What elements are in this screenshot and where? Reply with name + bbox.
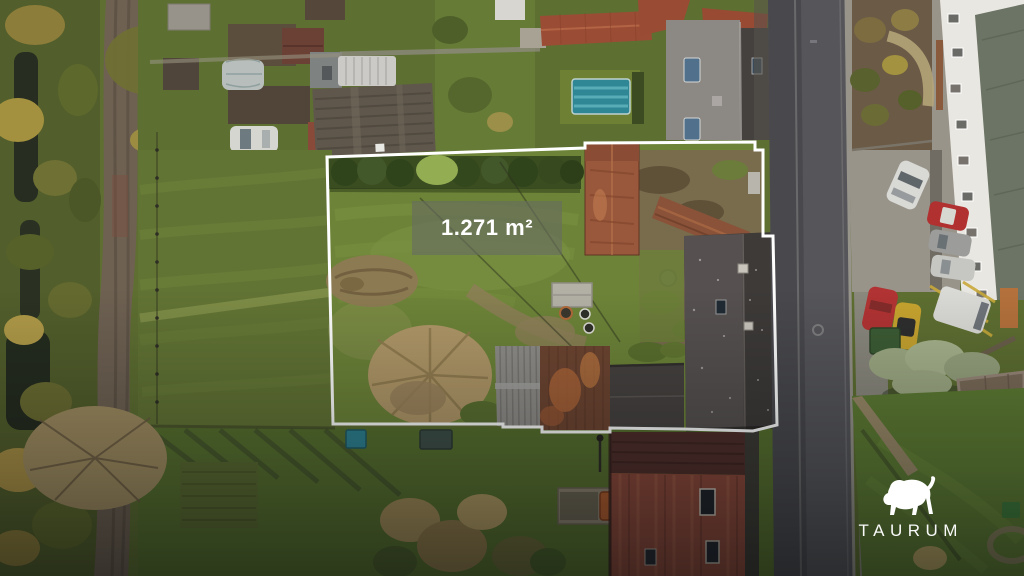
small-structure: [748, 172, 760, 194]
roof-window: [700, 489, 715, 515]
house-wing-roof: [610, 363, 684, 430]
brand-name: TAURUM: [838, 521, 978, 541]
barn-rust-roof: [585, 143, 639, 255]
aerial-property-photo: 1.271 m² TAURUM: [0, 0, 1024, 576]
barrel: [584, 323, 594, 333]
area-label: 1.271 m²: [441, 215, 533, 241]
area-label-badge: 1.271 m²: [412, 201, 562, 255]
pool-garden: [560, 70, 644, 124]
teal-container: [346, 430, 366, 448]
soil-plot: [228, 86, 310, 124]
concrete-slab: [168, 4, 210, 30]
taurum-logo: TAURUM: [838, 474, 978, 541]
dark-tarp: [420, 430, 452, 449]
hay-pile: [913, 546, 947, 570]
weathered-barn-roof: [312, 83, 435, 157]
barrel: [560, 307, 572, 319]
chimney: [738, 264, 748, 273]
bull-icon: [876, 474, 940, 518]
white-shed: [495, 0, 525, 20]
orange-wall: [1000, 288, 1018, 328]
red-roof-house: [610, 430, 759, 576]
small-sign: [375, 144, 384, 152]
main-house-roof: [684, 232, 777, 431]
white-trailer: [338, 56, 396, 86]
hedge: [632, 72, 644, 124]
fence-line: [140, 426, 335, 428]
barrel: [580, 309, 590, 319]
chimney: [744, 322, 753, 330]
green-box: [1002, 502, 1020, 518]
building-shadow: [745, 430, 759, 576]
parked-car-white: [230, 126, 278, 152]
garden-bed: [850, 0, 932, 150]
corrugated-roof: [495, 346, 540, 428]
bare-tree: [23, 406, 167, 510]
deck-structure: [558, 488, 616, 524]
brush-mound: [326, 255, 418, 307]
red-tile-building: [540, 11, 652, 46]
garden-shed: [552, 283, 592, 307]
roof-window: [706, 541, 719, 563]
rust-roof-section: [540, 346, 610, 430]
top-gardens: [138, 0, 778, 158]
skylight: [716, 300, 726, 314]
bright-bush: [416, 155, 458, 185]
hedge-row: [329, 155, 584, 191]
roof-window: [645, 549, 656, 565]
building-trim: [936, 40, 943, 110]
